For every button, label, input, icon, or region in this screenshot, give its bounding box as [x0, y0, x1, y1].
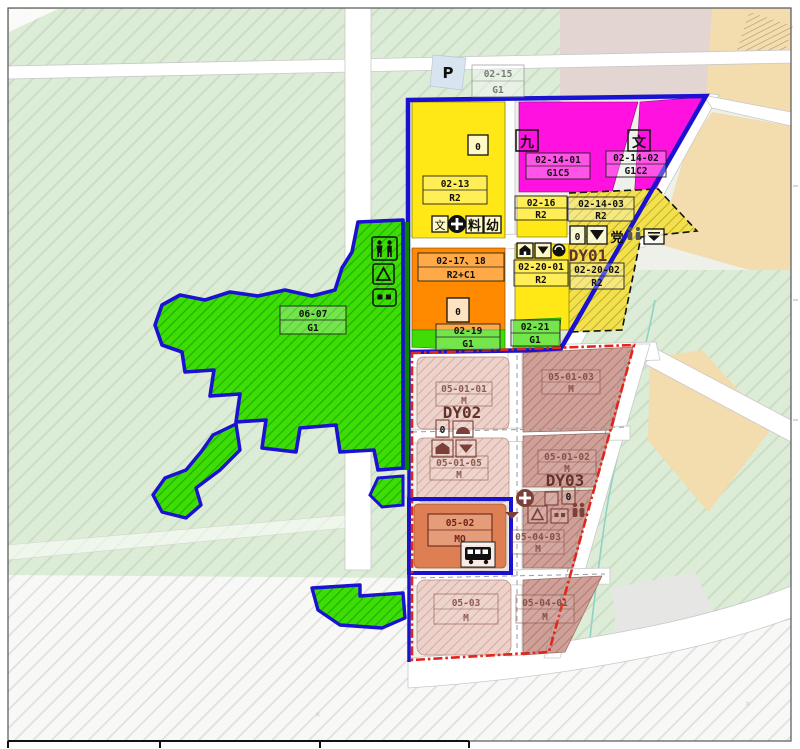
- zero-marker-icon: 0: [562, 487, 575, 504]
- svg-text:02-14-01: 02-14-01: [535, 155, 581, 166]
- svg-text:05-01-03: 05-01-03: [548, 372, 594, 383]
- svg-text:M: M: [456, 470, 462, 481]
- svg-text:05-04-03: 05-04-03: [515, 532, 561, 543]
- parcel-label-02-21: 02-21 G1: [511, 320, 560, 346]
- svg-text:R2: R2: [535, 210, 546, 221]
- parcel-label-05-04-01: 05-04-01 M: [516, 595, 574, 623]
- parcel-label-02-16: 02-16 R2: [515, 196, 567, 221]
- zero-marker-icon: 0: [436, 420, 449, 437]
- district-label-dy02: DY02: [443, 403, 482, 422]
- road-inner-vertical: [505, 98, 515, 352]
- parking-icon: P: [443, 64, 454, 82]
- parcel-label-05-01-03: 05-01-03 M: [542, 370, 600, 395]
- svg-text:M: M: [535, 544, 541, 555]
- svg-text:料: 料: [468, 218, 481, 234]
- parcel-label-02-14-01: 02-14-01 G1C5: [526, 153, 590, 179]
- svg-text:05-03: 05-03: [452, 598, 481, 609]
- parcel-label-02-20-01: 02-20-01 R2: [514, 260, 568, 286]
- svg-text:02-14-02: 02-14-02: [613, 153, 659, 164]
- svg-text:02-13: 02-13: [441, 179, 470, 190]
- svg-text:05-01-01: 05-01-01: [441, 384, 487, 395]
- svg-text:幼: 幼: [486, 218, 499, 234]
- svg-text:02-14-03: 02-14-03: [578, 199, 624, 210]
- survey-cross-mark: ×: [745, 699, 751, 710]
- parcel-label-06-07: 06-07 G1: [280, 306, 346, 334]
- culture-disc-icon: [553, 244, 566, 257]
- svg-text:02-20-02: 02-20-02: [574, 265, 620, 276]
- zero-marker-icon: 0: [447, 298, 469, 322]
- zoning-map: × ×: [0, 0, 800, 749]
- chevron-down-icon: [644, 229, 664, 244]
- svg-text:0: 0: [566, 492, 572, 503]
- parcel-label-02-19: 02-19 G1: [436, 324, 500, 350]
- housing-icon: [517, 243, 533, 258]
- parcel-label-05-02: 05-02 MO: [428, 514, 492, 546]
- svg-text:M: M: [463, 613, 469, 624]
- svg-text:M: M: [568, 384, 574, 395]
- parcel-label-02-15: 02-15 G1: [472, 65, 524, 97]
- material-market-icon: 料: [466, 216, 483, 234]
- parcel-label-02-20-02: 02-20-02 R2: [570, 263, 624, 289]
- svg-text:0: 0: [575, 232, 581, 243]
- parcel-label-02-14-03: 02-14-03 R2: [568, 197, 634, 222]
- zero-marker-icon: 0: [468, 135, 488, 155]
- parcel-label-02-14-02: 02-14-02 G1C2: [606, 151, 666, 177]
- svg-text:G1: G1: [462, 339, 474, 350]
- svg-text:R2: R2: [449, 193, 460, 204]
- zoning-map-canvas: × ×: [0, 0, 800, 749]
- svg-text:文: 文: [632, 134, 647, 151]
- svg-text:G1: G1: [529, 335, 541, 346]
- housing-icon: [432, 440, 453, 457]
- svg-text:02-20-01: 02-20-01: [518, 262, 564, 273]
- substation-squares-icon: [551, 509, 568, 523]
- retail-triangle-icon: [535, 243, 551, 258]
- kindergarten-icon: 幼: [484, 216, 501, 234]
- svg-text:R2+C1: R2+C1: [447, 270, 476, 281]
- retail-triangle-icon: [587, 226, 607, 244]
- parcel-label-02-13: 02-13 R2: [423, 176, 487, 204]
- parcel-label-05-03: 05-03 M: [434, 594, 498, 624]
- svg-text:M: M: [542, 612, 548, 623]
- dome-market-icon: [453, 421, 473, 437]
- parcel-label-05-04-03: 05-04-03 M: [512, 530, 564, 555]
- svg-text:05-04-01: 05-04-01: [522, 598, 568, 609]
- survey-cross-mark: ×: [315, 710, 321, 721]
- school-icon: 文: [432, 216, 448, 232]
- svg-text:G1C2: G1C2: [625, 166, 648, 177]
- svg-text:文: 文: [435, 218, 446, 232]
- bus-depot-icon: [461, 542, 495, 567]
- svg-text:0: 0: [475, 142, 481, 153]
- svg-text:R2: R2: [535, 275, 546, 286]
- green-triangle-icon: [528, 506, 547, 523]
- svg-text:02-15: 02-15: [484, 69, 513, 80]
- svg-text:02-16: 02-16: [527, 198, 556, 209]
- parcel-label-05-01-05: 05-01-05 M: [430, 456, 488, 481]
- svg-text:R2: R2: [591, 278, 602, 289]
- svg-text:0: 0: [455, 307, 461, 318]
- hospital-cross-icon: [516, 489, 534, 507]
- small-box-icon: [545, 492, 558, 505]
- svg-text:05-01-02: 05-01-02: [544, 452, 590, 463]
- svg-text:05-01-05: 05-01-05: [436, 458, 482, 469]
- svg-text:0: 0: [440, 425, 446, 436]
- parcel-label-02-17-18: 02-17、18 R2+C1: [418, 253, 504, 281]
- zero-marker-icon: 0: [570, 226, 585, 244]
- svg-text:G1: G1: [307, 323, 319, 334]
- svg-text:02-21: 02-21: [521, 322, 550, 333]
- svg-text:G1: G1: [492, 85, 504, 96]
- svg-text:05-02: 05-02: [446, 518, 475, 529]
- hospital-cross-icon: [448, 215, 466, 233]
- svg-text:06-07: 06-07: [299, 309, 328, 320]
- svg-text:R2: R2: [595, 211, 606, 222]
- svg-text:02-17、18: 02-17、18: [436, 256, 486, 267]
- svg-text:02-19: 02-19: [454, 326, 483, 337]
- party-service-icon: 党: [610, 230, 623, 246]
- district-label-dy01: DY01: [569, 246, 608, 265]
- retail-triangle-icon: [456, 440, 476, 457]
- svg-text:九: 九: [519, 135, 534, 151]
- svg-text:G1C5: G1C5: [547, 168, 570, 179]
